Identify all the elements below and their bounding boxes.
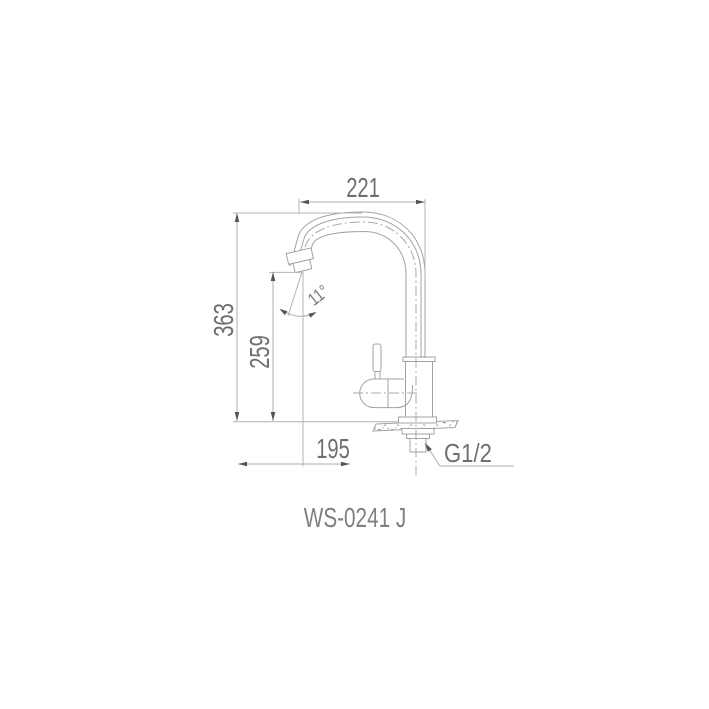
handle-lever <box>373 344 381 372</box>
thread-stem <box>410 439 426 453</box>
thread-callout: G1/2 <box>425 439 514 468</box>
dimension-bottom-offset: 195 <box>238 434 350 466</box>
base-washer <box>402 429 434 435</box>
spout-nozzle <box>286 248 315 274</box>
drawing-canvas: 221 363 259 11° 195 G1/2 WS-0 <box>0 0 709 709</box>
arrow-right <box>416 200 425 205</box>
arrow-left <box>300 200 309 205</box>
dimension-total-height: 363 <box>209 213 362 421</box>
base-flange <box>399 417 437 423</box>
handle-stem <box>375 372 380 380</box>
dimension-top-width: 221 <box>299 173 425 274</box>
body-column <box>406 362 433 419</box>
angle-label: 11° <box>304 281 333 309</box>
dim-label-221: 221 <box>346 173 380 204</box>
arrow-bottom <box>271 412 276 421</box>
faucet-dimension-drawing: 221 363 259 11° 195 G1/2 WS-0 <box>0 0 709 709</box>
arrow-bottom <box>235 412 240 421</box>
dim-label-195: 195 <box>316 434 350 465</box>
thread-label: G1/2 <box>444 439 492 468</box>
arrow-top <box>235 213 240 222</box>
model-label: WS-0241 J <box>304 503 406 534</box>
base-nut <box>407 434 430 439</box>
angle-arrow-left <box>280 309 288 315</box>
dimension-spout-height: 259 <box>245 272 302 421</box>
angle-arrow-right <box>308 312 316 318</box>
arrow-left <box>238 462 247 467</box>
dim-label-259: 259 <box>245 335 276 369</box>
arrow-top <box>271 272 276 281</box>
dim-label-363: 363 <box>209 303 240 337</box>
body-collar <box>403 357 435 362</box>
angle-annotation: 11° <box>280 272 333 318</box>
